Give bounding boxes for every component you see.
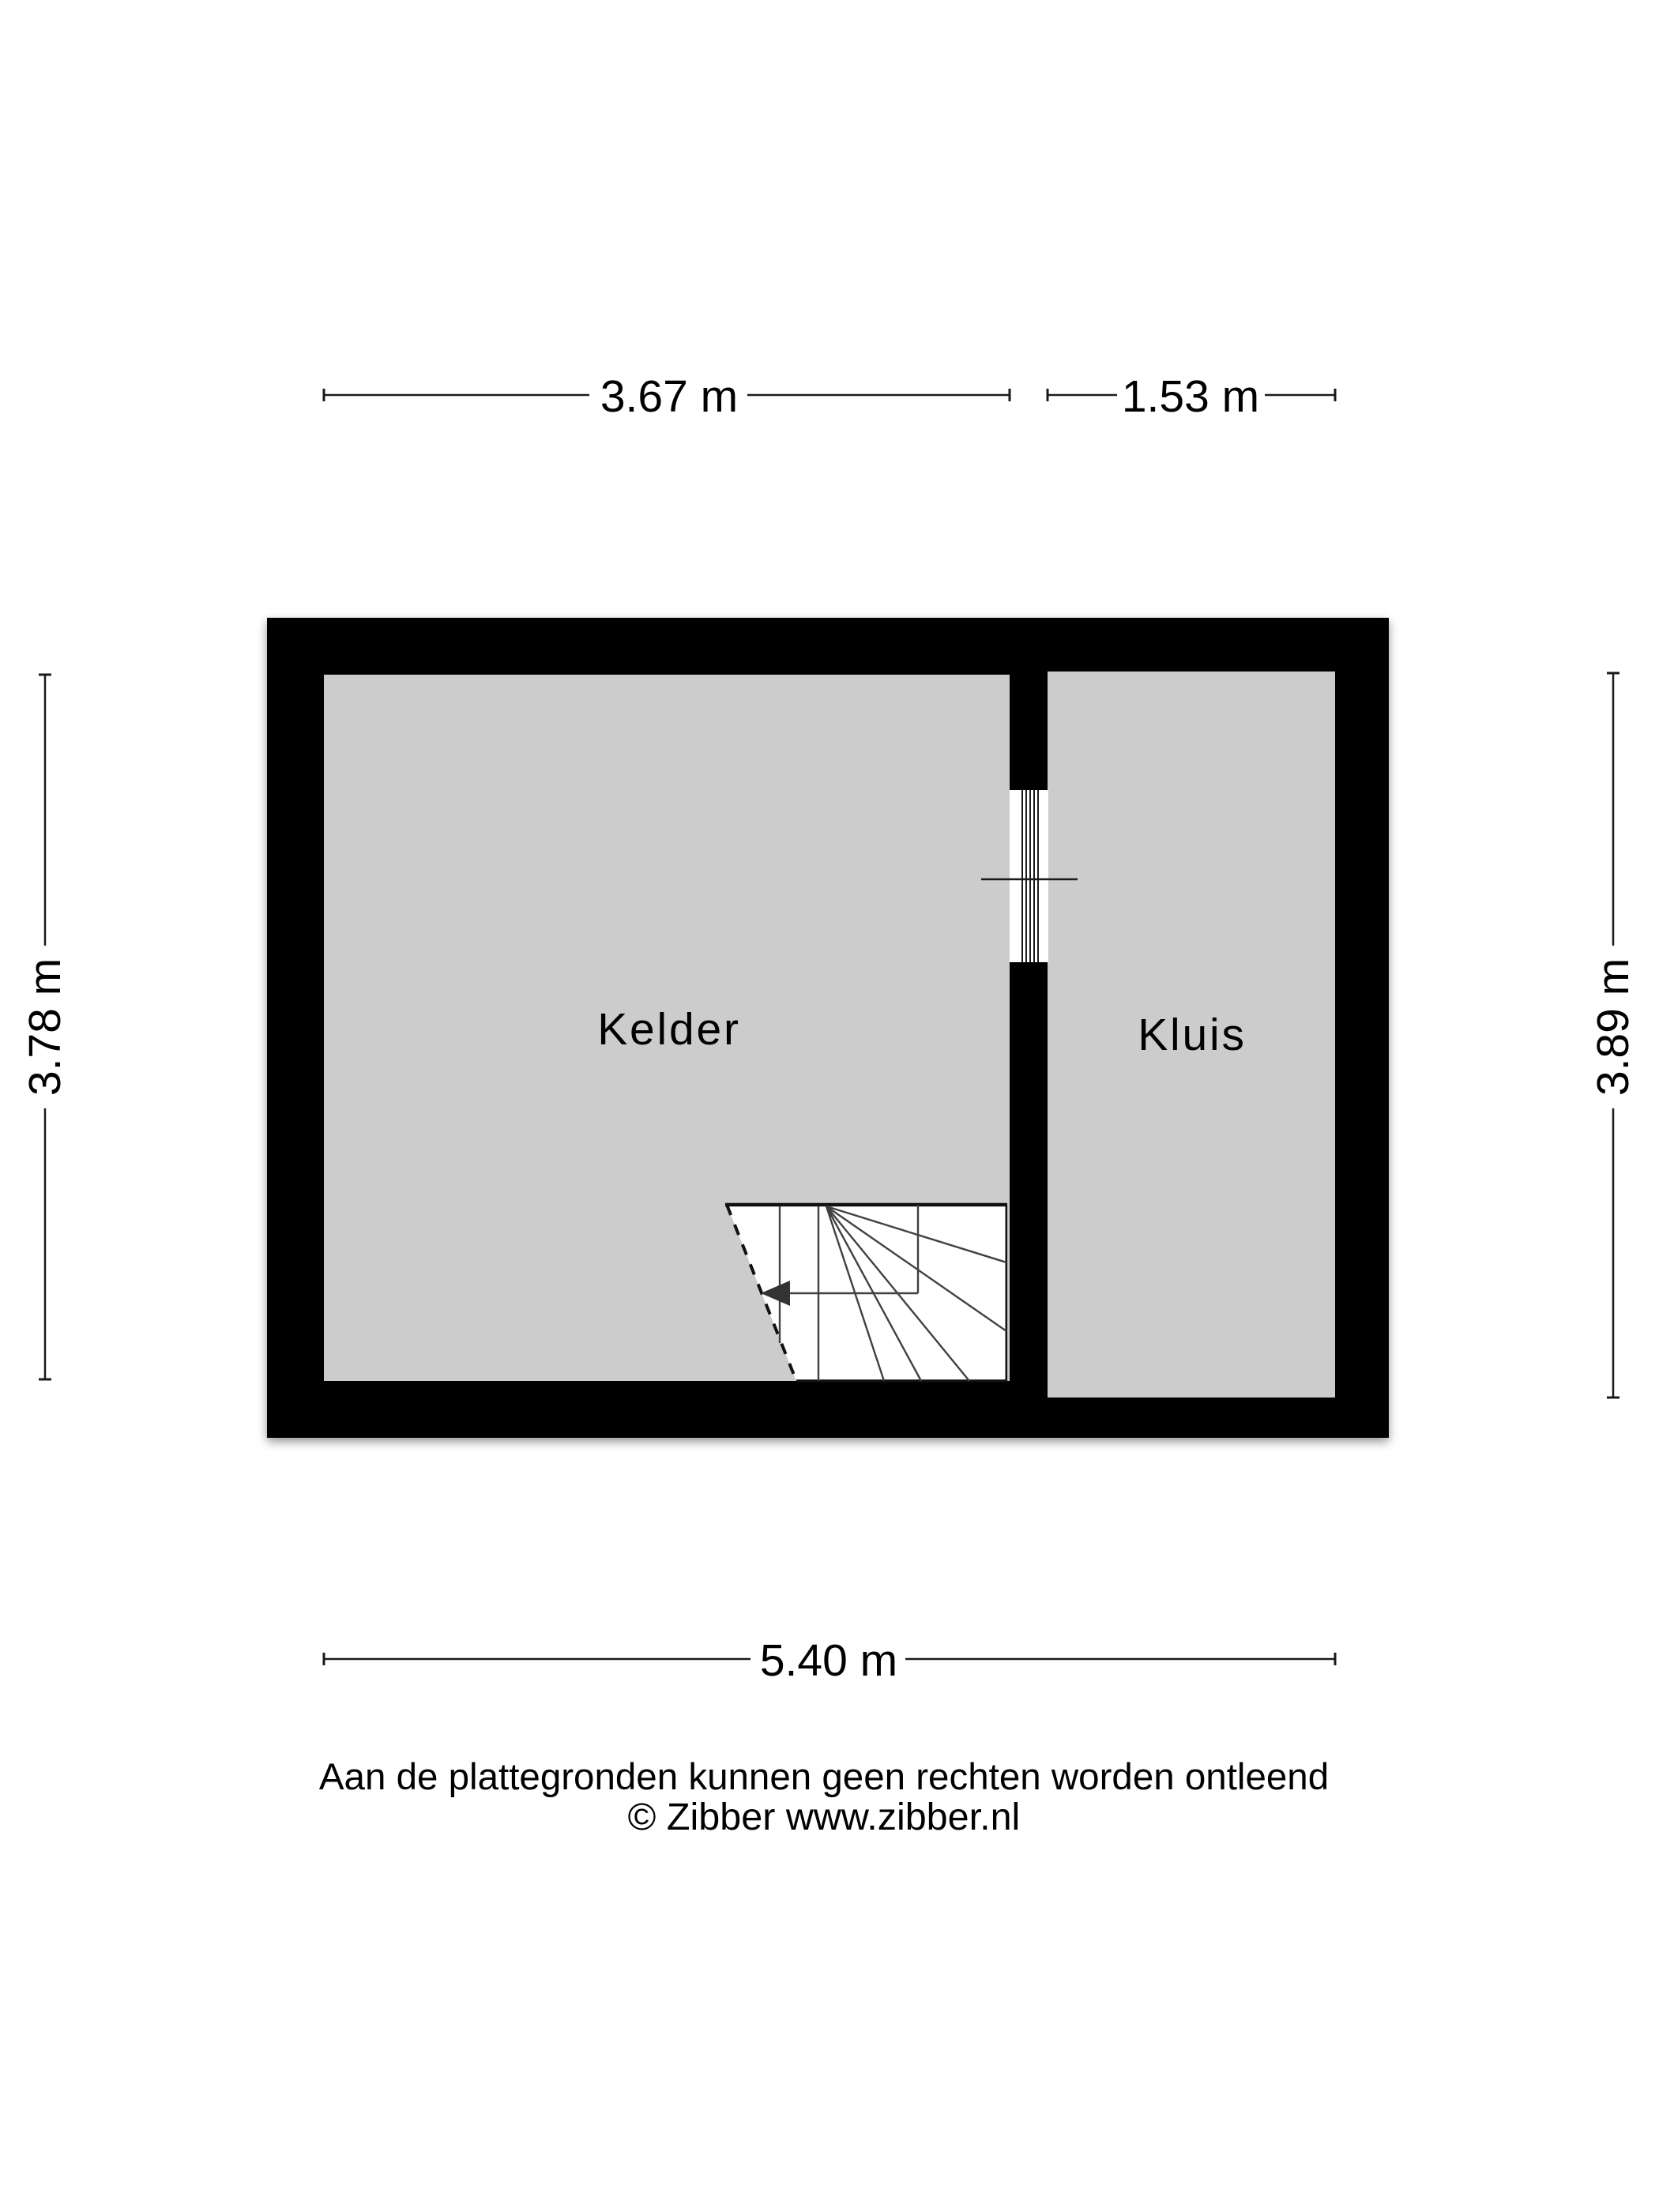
- svg-text:Kelder: Kelder: [597, 1004, 741, 1055]
- svg-text:© Zibber www.zibber.nl: © Zibber www.zibber.nl: [628, 1796, 1021, 1838]
- svg-text:1.53 m: 1.53 m: [1122, 371, 1259, 422]
- svg-text:Aan de plattegronden kunnen ge: Aan de plattegronden kunnen geen rechten…: [319, 1756, 1329, 1798]
- svg-text:3.89 m: 3.89 m: [1588, 958, 1638, 1096]
- svg-text:Kluis: Kluis: [1138, 1010, 1247, 1060]
- svg-text:5.40 m: 5.40 m: [760, 1635, 897, 1686]
- svg-text:3.78 m: 3.78 m: [20, 958, 70, 1096]
- svg-text:3.67 m: 3.67 m: [600, 371, 738, 422]
